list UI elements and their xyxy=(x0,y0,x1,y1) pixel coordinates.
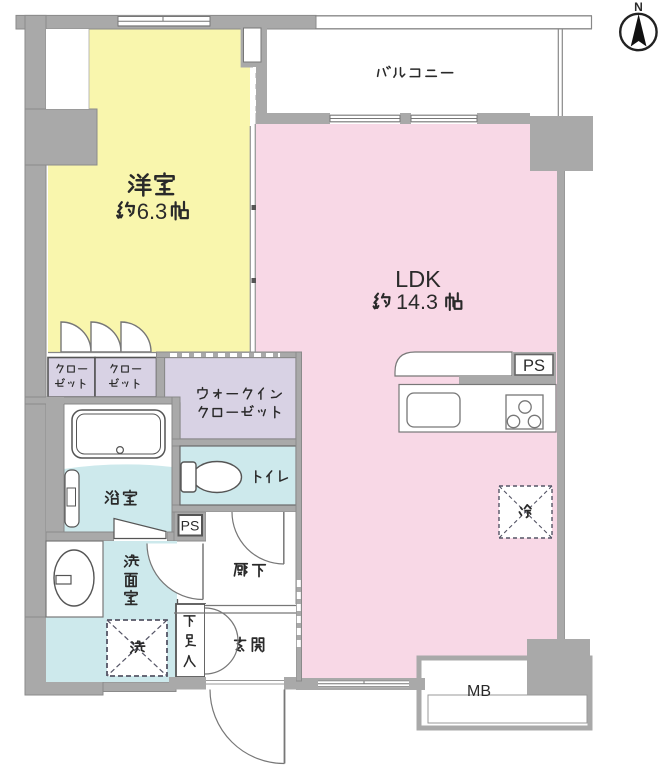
svg-text:PS: PS xyxy=(181,518,200,534)
svg-text:14.3: 14.3 xyxy=(396,290,438,314)
svg-text:MB: MB xyxy=(467,683,491,700)
svg-text:6.3: 6.3 xyxy=(137,199,168,224)
svg-text:N: N xyxy=(634,0,643,14)
svg-text:PS: PS xyxy=(523,357,545,375)
svg-text:LDK: LDK xyxy=(395,266,441,292)
